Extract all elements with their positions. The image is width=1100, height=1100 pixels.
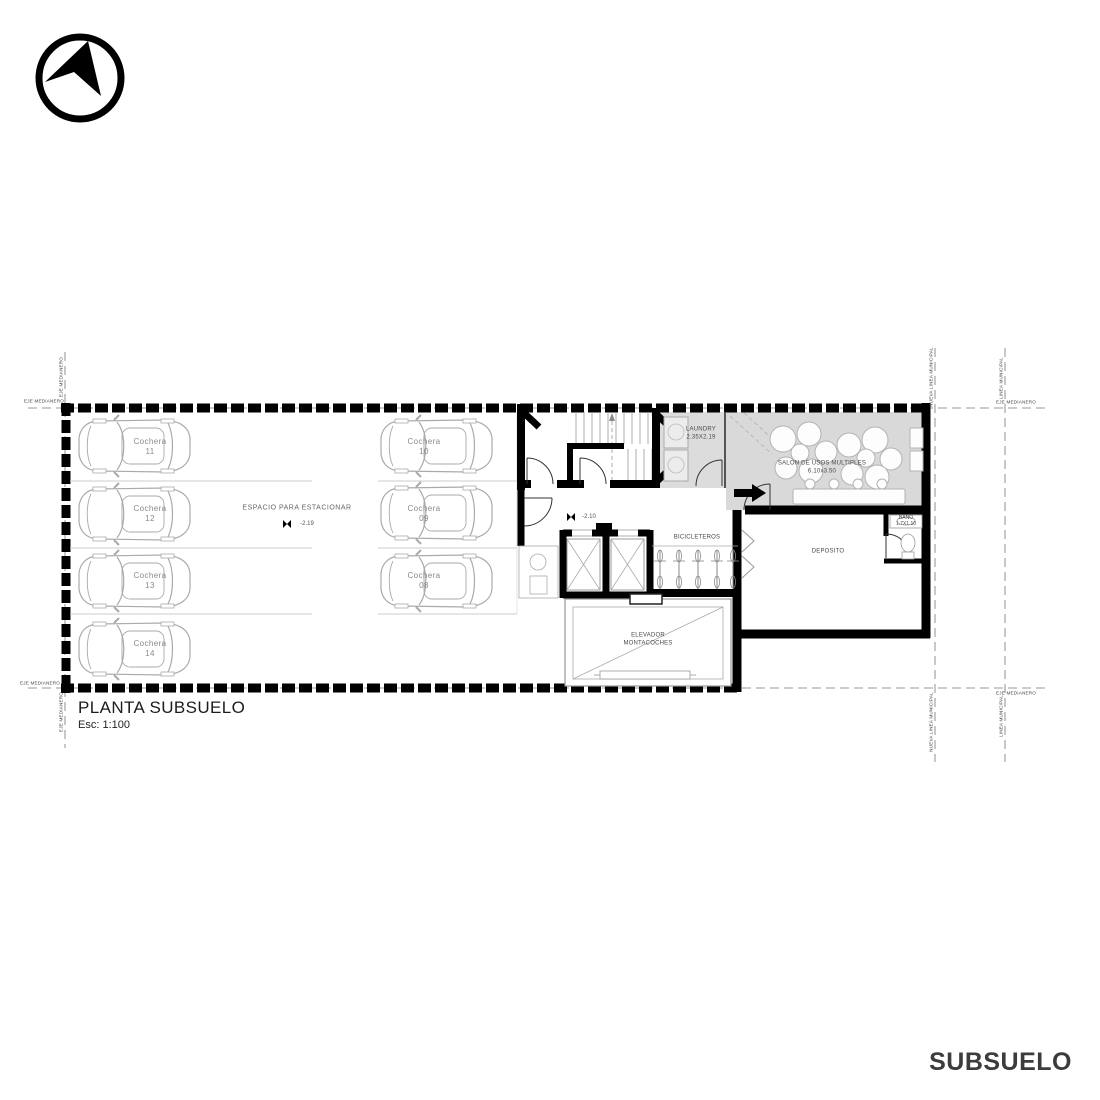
ref-label-linea-municipal-bottom: LINEA MUNICIPAL [999, 695, 1004, 737]
stall-label-cochera-08: Cochera08 [407, 571, 440, 591]
stall-label-cochera-09: Cochera09 [407, 504, 440, 524]
ref-label-eje-medianero-top-left: EJE MEDIANERO [24, 399, 64, 404]
plan-title: PLANTA SUBSUELO [78, 698, 245, 718]
ref-label-eje-medianero-top-right: EJE MEDIANERO [996, 400, 1036, 405]
level-marker-icon [283, 520, 291, 528]
parking-area-label: ESPACIO PARA ESTACIONAR [242, 505, 351, 512]
stall-label-cochera-11: Cochera11 [133, 437, 166, 457]
stall-label-cochera-12: Cochera12 [133, 504, 166, 524]
ref-label-eje-medianero-left-bottom-vertical: EJE MEDIANERO [59, 692, 64, 732]
ref-label-nueva-linea-municipal-bottom: NUEVA LINEA MUNICIPAL [929, 692, 934, 752]
ref-label-nueva-linea-municipal-top: NUEVA LINEA MUNICIPAL [929, 347, 934, 407]
room-label-salon: SALON DE USOS MULTIPLES6.10x3.50 [778, 461, 866, 476]
room-label-laundry: LAUNDRY2.35X2.19 [686, 427, 716, 442]
floor-plan-drawing [0, 0, 1100, 1100]
level-marker-icon [567, 513, 575, 521]
floor-name-footer: SUBSUELO [929, 1048, 1072, 1077]
lobby-level-value: -2.10 [582, 514, 596, 520]
ref-label-eje-medianero-bottom-left: EJE MEDIANERO [20, 681, 60, 686]
stall-label-cochera-10: Cochera10 [407, 437, 440, 457]
plan-scale: Esc: 1:100 [78, 719, 130, 731]
parking-level-value: -2.19 [300, 521, 314, 527]
stall-label-cochera-13: Cochera13 [133, 571, 166, 591]
stair-block [521, 404, 670, 490]
floorplan-page: Cochera11 Cochera12 Cochera13 Cochera14 … [0, 0, 1100, 1100]
room-label-bicicleteros: BICICLETEROS [674, 534, 720, 542]
elevator-block [563, 523, 650, 598]
ref-label-eje-medianero-left-top-vertical: EJE MEDIANERO [59, 357, 64, 397]
room-label-elevador: ELEVADORMONTACOCHES [623, 633, 672, 648]
north-arrow-compass-icon [0, 0, 160, 160]
stall-label-cochera-14: Cochera14 [133, 639, 166, 659]
room-label-deposito: DEPOSITO [812, 548, 845, 556]
ref-label-linea-municipal-top: LINEA MUNICIPAL [999, 357, 1004, 399]
room-label-bano: BAÑO1.7X1.10 [896, 515, 916, 527]
